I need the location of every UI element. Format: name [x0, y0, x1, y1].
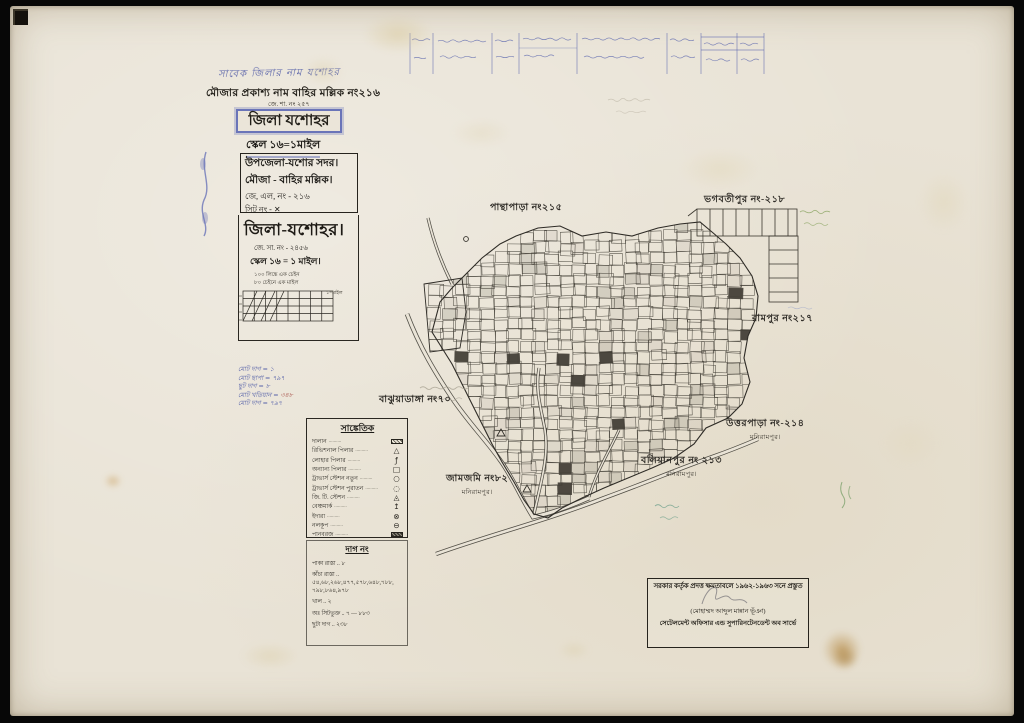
handwritten-register-table [410, 33, 775, 81]
legend-symbol-icon: ↥ [390, 502, 403, 511]
legend-leader-dots: .......... [358, 476, 390, 481]
mouza-region-label-text: পান্থাপাড়া নং২১৫ [490, 203, 562, 213]
paper-stain [822, 630, 862, 670]
paper-stain [104, 474, 122, 488]
legend-symbol-icon [390, 530, 403, 539]
dag-row-label: পাকা রাস্তা .. [312, 561, 341, 567]
legend-leader-dots: .......... [353, 448, 390, 453]
thana-sub-label: মনিরামপুর। [726, 432, 805, 443]
scale-bar-unit-label: ১=মাইল [326, 290, 343, 298]
attestation-statement: সরকার কর্তৃক প্রদত্ত ক্ষমতাবলে ১৯৬২-১৯৬৩… [652, 582, 804, 591]
mouza-region-label: বাঝুয়াডাঙ্গা নং৭০ [379, 393, 451, 408]
dag-row-label: অঃ সিটভুক্ত .. [312, 611, 346, 617]
tally-note-line: মোট ছাপা = ৭৯৭ [238, 373, 348, 382]
thana-sub-label: মনিরামপুর। [641, 469, 722, 480]
scale-note-chain: ১০০ লিঙ্কে এক চেইন [254, 272, 300, 280]
mouza-region-label-text: ভগবতীপুর নং-২১৮ [704, 195, 785, 205]
paper-stain [240, 642, 300, 670]
scanned-map-paper: সাবেক জিলার নাম যশোহর মৌজার প্রকাশ্য নাম… [10, 6, 1014, 716]
legend-symbol-icon [390, 437, 403, 446]
corner-stamp-mark [13, 9, 28, 25]
mouza-region-label: বলিয়ানপুর নং ২১৩মনিরামপুর। [641, 454, 722, 480]
mouza-region-label-text: উত্তরপাড়া নং-২১৪ [726, 419, 805, 429]
upazila-line: উপজেলা-যশোর সদর। [245, 156, 353, 173]
dag-number-box: দাগ নং পাকা রাস্তা .. ৮কাঁচা রাস্তা .. ৫… [306, 540, 408, 646]
signature [652, 591, 804, 606]
legend-leader-dots: .......... [332, 504, 390, 509]
dag-row-value: ৫৪,৬৮,২৬৮,৪৭৭,৫৭৮,৬৪৮,৭৮৮, ৭৯৮,৮৬৪,৯৭৮ [312, 580, 394, 594]
legend-leader-dots: .......... [346, 458, 390, 463]
legend-item: বেঞ্চমার্ক..........↥ [312, 502, 403, 511]
tally-note-line: মোট দাগ = ৭৯৭ [238, 398, 348, 407]
dag-row-label: কাঁচা রাস্তা .. [312, 572, 339, 578]
scale-note-mile: ৮০ চেইনে এক মাইল [254, 280, 298, 288]
district-title-boxed: জিলা যশোহর [236, 109, 342, 133]
legend-item-label: পানবরজ [312, 529, 333, 540]
mouza-region-label-text: বলিয়ানপুর নং ২১৩ [641, 456, 722, 466]
mouza-region-label: রামপুর নং২১৭ [752, 312, 813, 327]
dag-row-label: খাল .. [312, 599, 328, 605]
legend-item: পানবরজ.......... [312, 530, 403, 539]
dag-title: দাগ নং [312, 543, 402, 557]
dag-row-value: ২৩৮ [336, 622, 347, 628]
legend-symbol-icon: ◌ [390, 484, 403, 493]
legend-leader-dots: .......... [325, 514, 390, 519]
tally-note-accent: ৩৪৮ [281, 392, 293, 399]
thana-sub-label: মনিরামপুর। [446, 487, 508, 498]
legend-title: সাঙ্কেতিক [312, 421, 403, 436]
legend-symbol-icon: △ [390, 446, 403, 455]
signatory-title: সেটেলমেন্ট অফিসার এন্ড সুপারিনটেনডেন্ট অ… [652, 617, 804, 629]
legend-leader-dots: .......... [346, 467, 390, 472]
dag-row: কাঁচা রাস্তা .. ৫৪,৬৮,২৬৮,৪৭৭,৫৭৮,৬৪৮,৭৮… [312, 572, 402, 595]
dag-row-label: ছুটা দাগ .. [312, 622, 336, 628]
tally-note-line: ছুট দাগ = ৮ [238, 381, 348, 390]
dag-rows: পাকা রাস্তা .. ৮কাঁচা রাস্তা .. ৫৪,৬৮,২৬… [312, 561, 402, 630]
dag-row-value: ৮ [341, 561, 345, 567]
mouza-region-label-text: বাঝুয়াডাঙ্গা নং৭০ [379, 395, 451, 405]
legend-symbol-icon: ○ [390, 474, 403, 483]
mouza-region-label-text: জামজমি নং৮২ [446, 474, 508, 484]
legend-symbol-icon: ⊖ [390, 521, 403, 530]
tally-note-line: মোট খতিয়ান = ৩৪৮ [238, 390, 348, 399]
mouza-region-label-text: রামপুর নং২১৭ [752, 314, 813, 324]
jl-number-line: জে, এল, নং - ২১৬ [245, 190, 353, 204]
legend-symbol-icon: ⊗ [390, 512, 403, 521]
paper-stain [558, 640, 590, 660]
dag-row-value: ২ [328, 599, 332, 605]
dag-row: ছুটা দাগ .. ২৩৮ [312, 622, 402, 630]
signatory-name: (মোহাম্মদ আব্দুল মান্নান ভূঁঞা) [652, 606, 804, 617]
paper-stain [450, 118, 512, 148]
mouza-region-label: জামজমি নং৮২মনিরামপুর। [446, 472, 508, 498]
legend-leader-dots: .......... [328, 523, 390, 528]
legend-symbol-icon: ◬ [390, 493, 403, 502]
attestation-box: সরকার কর্তৃক প্রদত্ত ক্ষমতাবলে ১৯৬২-১৯৬৩… [647, 578, 809, 648]
legend-symbol-icon: ƒ [390, 456, 403, 465]
mouza-region-label: উত্তরপাড়া নং-২১৪মনিরামপুর। [726, 417, 805, 443]
survey-number-line: জে. সা. নং - ২৪৫৬ [254, 242, 308, 254]
district-title-large: জিলা-যশোহর। [244, 217, 344, 244]
legend-leader-dots: .......... [333, 532, 390, 537]
paper-stain [880, 418, 942, 468]
legend-leader-dots: .......... [363, 486, 390, 491]
tally-note-line: মোট দাগ = ১ [238, 364, 348, 373]
mouza-line: মৌজা - বাহির মল্লিক। [245, 173, 353, 190]
dag-row: খাল .. ২ [312, 599, 402, 607]
legend-symbol-icon: □ [390, 465, 403, 474]
handwritten-tally-notes: মোট দাগ = ১মোট ছাপা = ৭৯৭ছুট দাগ = ৮মোট … [238, 364, 348, 407]
mouza-region-label: ভগবতীপুর নং-২১৮ [704, 193, 785, 208]
legend-rows: দালান..........রিভিশনাল পিলার..........△… [312, 437, 403, 539]
scale-statement: স্কেল ১৬ = ১ মাইল। [250, 254, 321, 269]
dag-row: অঃ সিটভুক্ত .. ৭ — ৮৮৩ [312, 611, 402, 619]
map-drawing [10, 6, 1014, 716]
paper-stain [918, 171, 970, 233]
dag-row: পাকা রাস্তা .. ৮ [312, 561, 402, 569]
legend-leader-dots: .......... [345, 495, 390, 500]
legend-box: সাঙ্কেতিক দালান..........রিভিশনাল পিলার.… [306, 418, 408, 538]
mouza-info-box: উপজেলা-যশোর সদর। মৌজা - বাহির মল্লিক। জে… [240, 153, 358, 213]
paper-stain [678, 148, 762, 190]
paper-stain [832, 646, 858, 670]
dag-row-value: ৭ — ৮৮৩ [346, 611, 370, 617]
handwritten-district-note: সাবেক জিলার নাম যশোহর [218, 65, 340, 84]
legend-leader-dots: .......... [327, 439, 390, 444]
mouza-region-label: পান্থাপাড়া নং২১৫ [490, 201, 562, 216]
